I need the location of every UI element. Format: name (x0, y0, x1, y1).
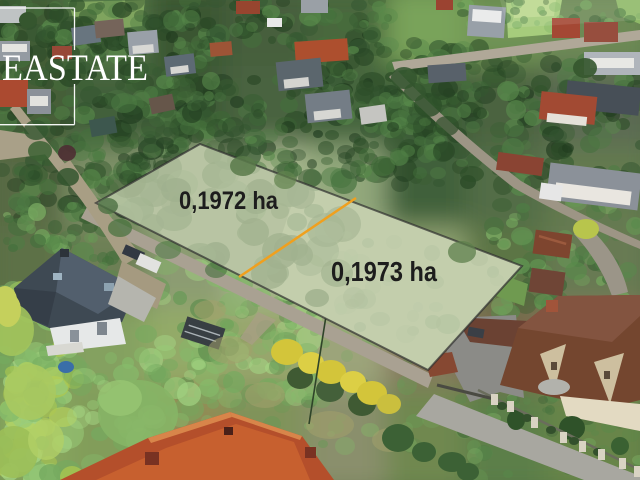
svg-text:EASTATE: EASTATE (2, 48, 148, 89)
svg-text:0,1972 ha: 0,1972 ha (179, 187, 279, 215)
svg-text:0,1973 ha: 0,1973 ha (331, 256, 437, 287)
